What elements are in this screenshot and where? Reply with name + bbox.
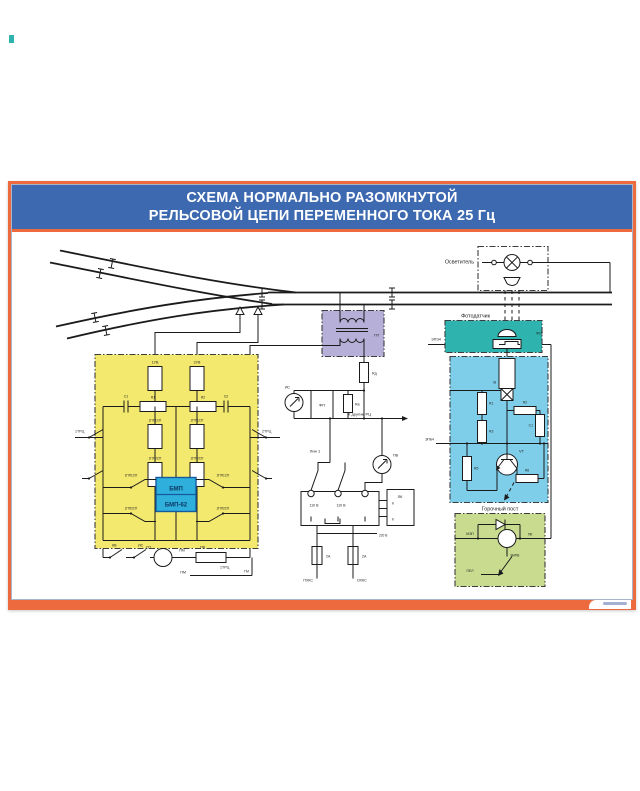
contact-label: 1ПП1СП: [125, 474, 138, 478]
label-pm: ПМ: [179, 549, 185, 553]
page: { "title": { "line1": "СХЕМА НОРМАЛЬНО Р…: [0, 0, 640, 791]
resistor-br3: [478, 421, 487, 443]
label-br3: R3: [489, 430, 493, 434]
resistor-1uv: [148, 367, 162, 391]
label-pv-meter: ПВ: [393, 454, 399, 458]
poster-title-line1: СХЕМА НОРМАЛЬНО РАЗОМКНУТОЙ: [186, 189, 457, 207]
label-k: К: [392, 518, 394, 522]
light-beam: [505, 291, 519, 325]
rail-bond-arrow-icon: [254, 307, 262, 315]
filter-group: К другим РЦ ИС ФП Rв: [285, 386, 408, 422]
label-v: В: [493, 380, 496, 385]
label-pk: ПК: [528, 533, 532, 537]
label-pel: ПЕЛ: [467, 569, 474, 573]
label-r2: R2: [201, 396, 205, 400]
label-2a: 2А: [362, 555, 367, 559]
label-phks: ПХКС: [303, 579, 313, 583]
amplifier-blue-block: В R1 R3 R2 С1 ЭПБ4 R5 VT R6: [425, 357, 548, 503]
resistor-r1: [140, 402, 166, 412]
label-epb4: ЭПБ4: [425, 438, 434, 442]
resistor-br5: [463, 457, 472, 481]
label-pv: ПВ: [200, 546, 206, 550]
label-c1: С1: [124, 395, 128, 399]
schematic-svg: Осветитель Фотодатчик ФСК ЭПЭ4 ПТ Rд К д…: [12, 232, 632, 599]
label-r1: R1: [151, 396, 155, 400]
schematic-area: Осветитель Фотодатчик ФСК ЭПЭ4 ПТ Rд К д…: [12, 232, 632, 599]
label-pt: ПТ: [374, 333, 380, 338]
label-br6: R6: [525, 469, 529, 473]
photoresistor-icon: [493, 340, 521, 349]
label-bc1: С1: [529, 424, 533, 428]
label-br1: R1: [489, 402, 493, 406]
bmp62-label: БМП-62: [165, 503, 188, 509]
fuse-group: 220 В 2А 2А ПХКС ОХКС: [303, 526, 387, 583]
resistor-pv: [196, 553, 226, 563]
poster-title-line2: РЕЛЬСОВОЙ ЦЕПИ ПЕРЕМЕННОГО ТОКА 25 Гц: [149, 207, 496, 225]
resistor-br1: [478, 393, 487, 415]
photo-artifact-speck: [9, 35, 14, 43]
label-is: ИС: [138, 544, 144, 548]
resistor-r2: [190, 402, 216, 412]
relay-coil-icon: [499, 359, 515, 389]
label-is-meter: ИС: [285, 386, 291, 390]
label-ohks: ОХКС: [357, 579, 367, 583]
label-1uv: 1УВ: [152, 361, 159, 365]
label-2a: 2А: [326, 555, 331, 559]
label-110v: 110 В: [309, 504, 319, 508]
label-kv: КВ: [112, 544, 117, 548]
label-rd: Rд: [372, 372, 378, 376]
label-2pp1sp: 2ПП1СП: [191, 419, 204, 423]
relay-sp-icon: [154, 549, 172, 567]
contact-label: 2ПП1СП: [217, 474, 230, 478]
capacitor-bc1: [536, 415, 545, 437]
resistor-2uv: [190, 367, 204, 391]
poster-inner: СХЕМА НОРМАЛЬНО РАЗОМКНУТОЙ РЕЛЬСОВОЙ ЦЕ…: [12, 185, 632, 599]
resistor-br6: [516, 475, 538, 483]
label-c2: С2: [224, 395, 228, 399]
label-epe4: ЭПЭ4: [431, 338, 441, 342]
label-1pp1sp: 1ПП1СП: [149, 419, 162, 423]
label-empv: ЭМПВ: [510, 554, 519, 558]
illuminator-label: Осветитель: [445, 260, 474, 266]
label-br2: R2: [523, 401, 527, 405]
relay-yellow-block: 1УВ 2УВ С1 R1 R2 С2 1ПП1СП 2ПП1СП 1ПП2СП…: [75, 355, 280, 549]
poster: СХЕМА НОРМАЛЬНО РАЗОМКНУТОЙ РЕЛЬСОВОЙ ЦЕ…: [8, 181, 636, 610]
label-2trc: 2ТРЦ: [262, 430, 272, 434]
label-110v: 110 В: [336, 504, 346, 508]
label-rv: Rв: [355, 403, 360, 407]
resistor-rv: [344, 395, 353, 413]
projector-lens-icon: [504, 278, 520, 286]
label-pm2: ПМ: [180, 571, 186, 575]
label-2uv: 2УВ: [194, 361, 201, 365]
label-vt: VT: [519, 449, 525, 454]
label-fsk: ФСК: [536, 332, 543, 336]
bmp-label: БМП: [169, 487, 183, 493]
label-br5: R5: [474, 467, 478, 471]
line1-label: Лин 1: [310, 449, 321, 454]
terminal-group: ПВ Лин 1 110 В 110 В ЛК К К: [301, 419, 414, 526]
label-1pp2sp: 1ПП2СП: [149, 457, 162, 461]
contact-label: 2ПП2СП: [217, 507, 230, 511]
label-k: К: [392, 502, 394, 506]
resistor-br2: [514, 407, 536, 415]
photosensor-label: Фотодатчик: [461, 314, 491, 320]
label-1trc: 1ТРЦ: [75, 430, 85, 434]
relay-pk-icon: [498, 530, 516, 548]
label-fp: ФП: [319, 403, 325, 408]
label-220v: 220 В: [379, 534, 387, 538]
contact-label: 1ПП2СП: [125, 507, 138, 511]
label-sp: СП: [146, 546, 152, 550]
resistor-rd: [360, 363, 369, 383]
label-2pp2sp: 2ПП2СП: [191, 457, 204, 461]
hump-post-label: Горочный пост: [482, 506, 519, 513]
bmp-block: БМП БМП-62: [156, 478, 196, 512]
label-gm: ГМ: [244, 570, 249, 574]
label-lk: ЛК: [398, 494, 404, 499]
poster-title: СХЕМА НОРМАЛЬНО РАЗОМКНУТОЙ РЕЛЬСОВОЙ ЦЕ…: [12, 185, 632, 232]
publisher-mark: [589, 600, 631, 609]
label-mep: МЭП: [466, 532, 474, 536]
label-1trc-b: 1ТРЦ: [220, 566, 230, 570]
hump-post-block: Горочный пост МЭП ПК ЭМПВ ПЕЛ: [455, 506, 551, 587]
